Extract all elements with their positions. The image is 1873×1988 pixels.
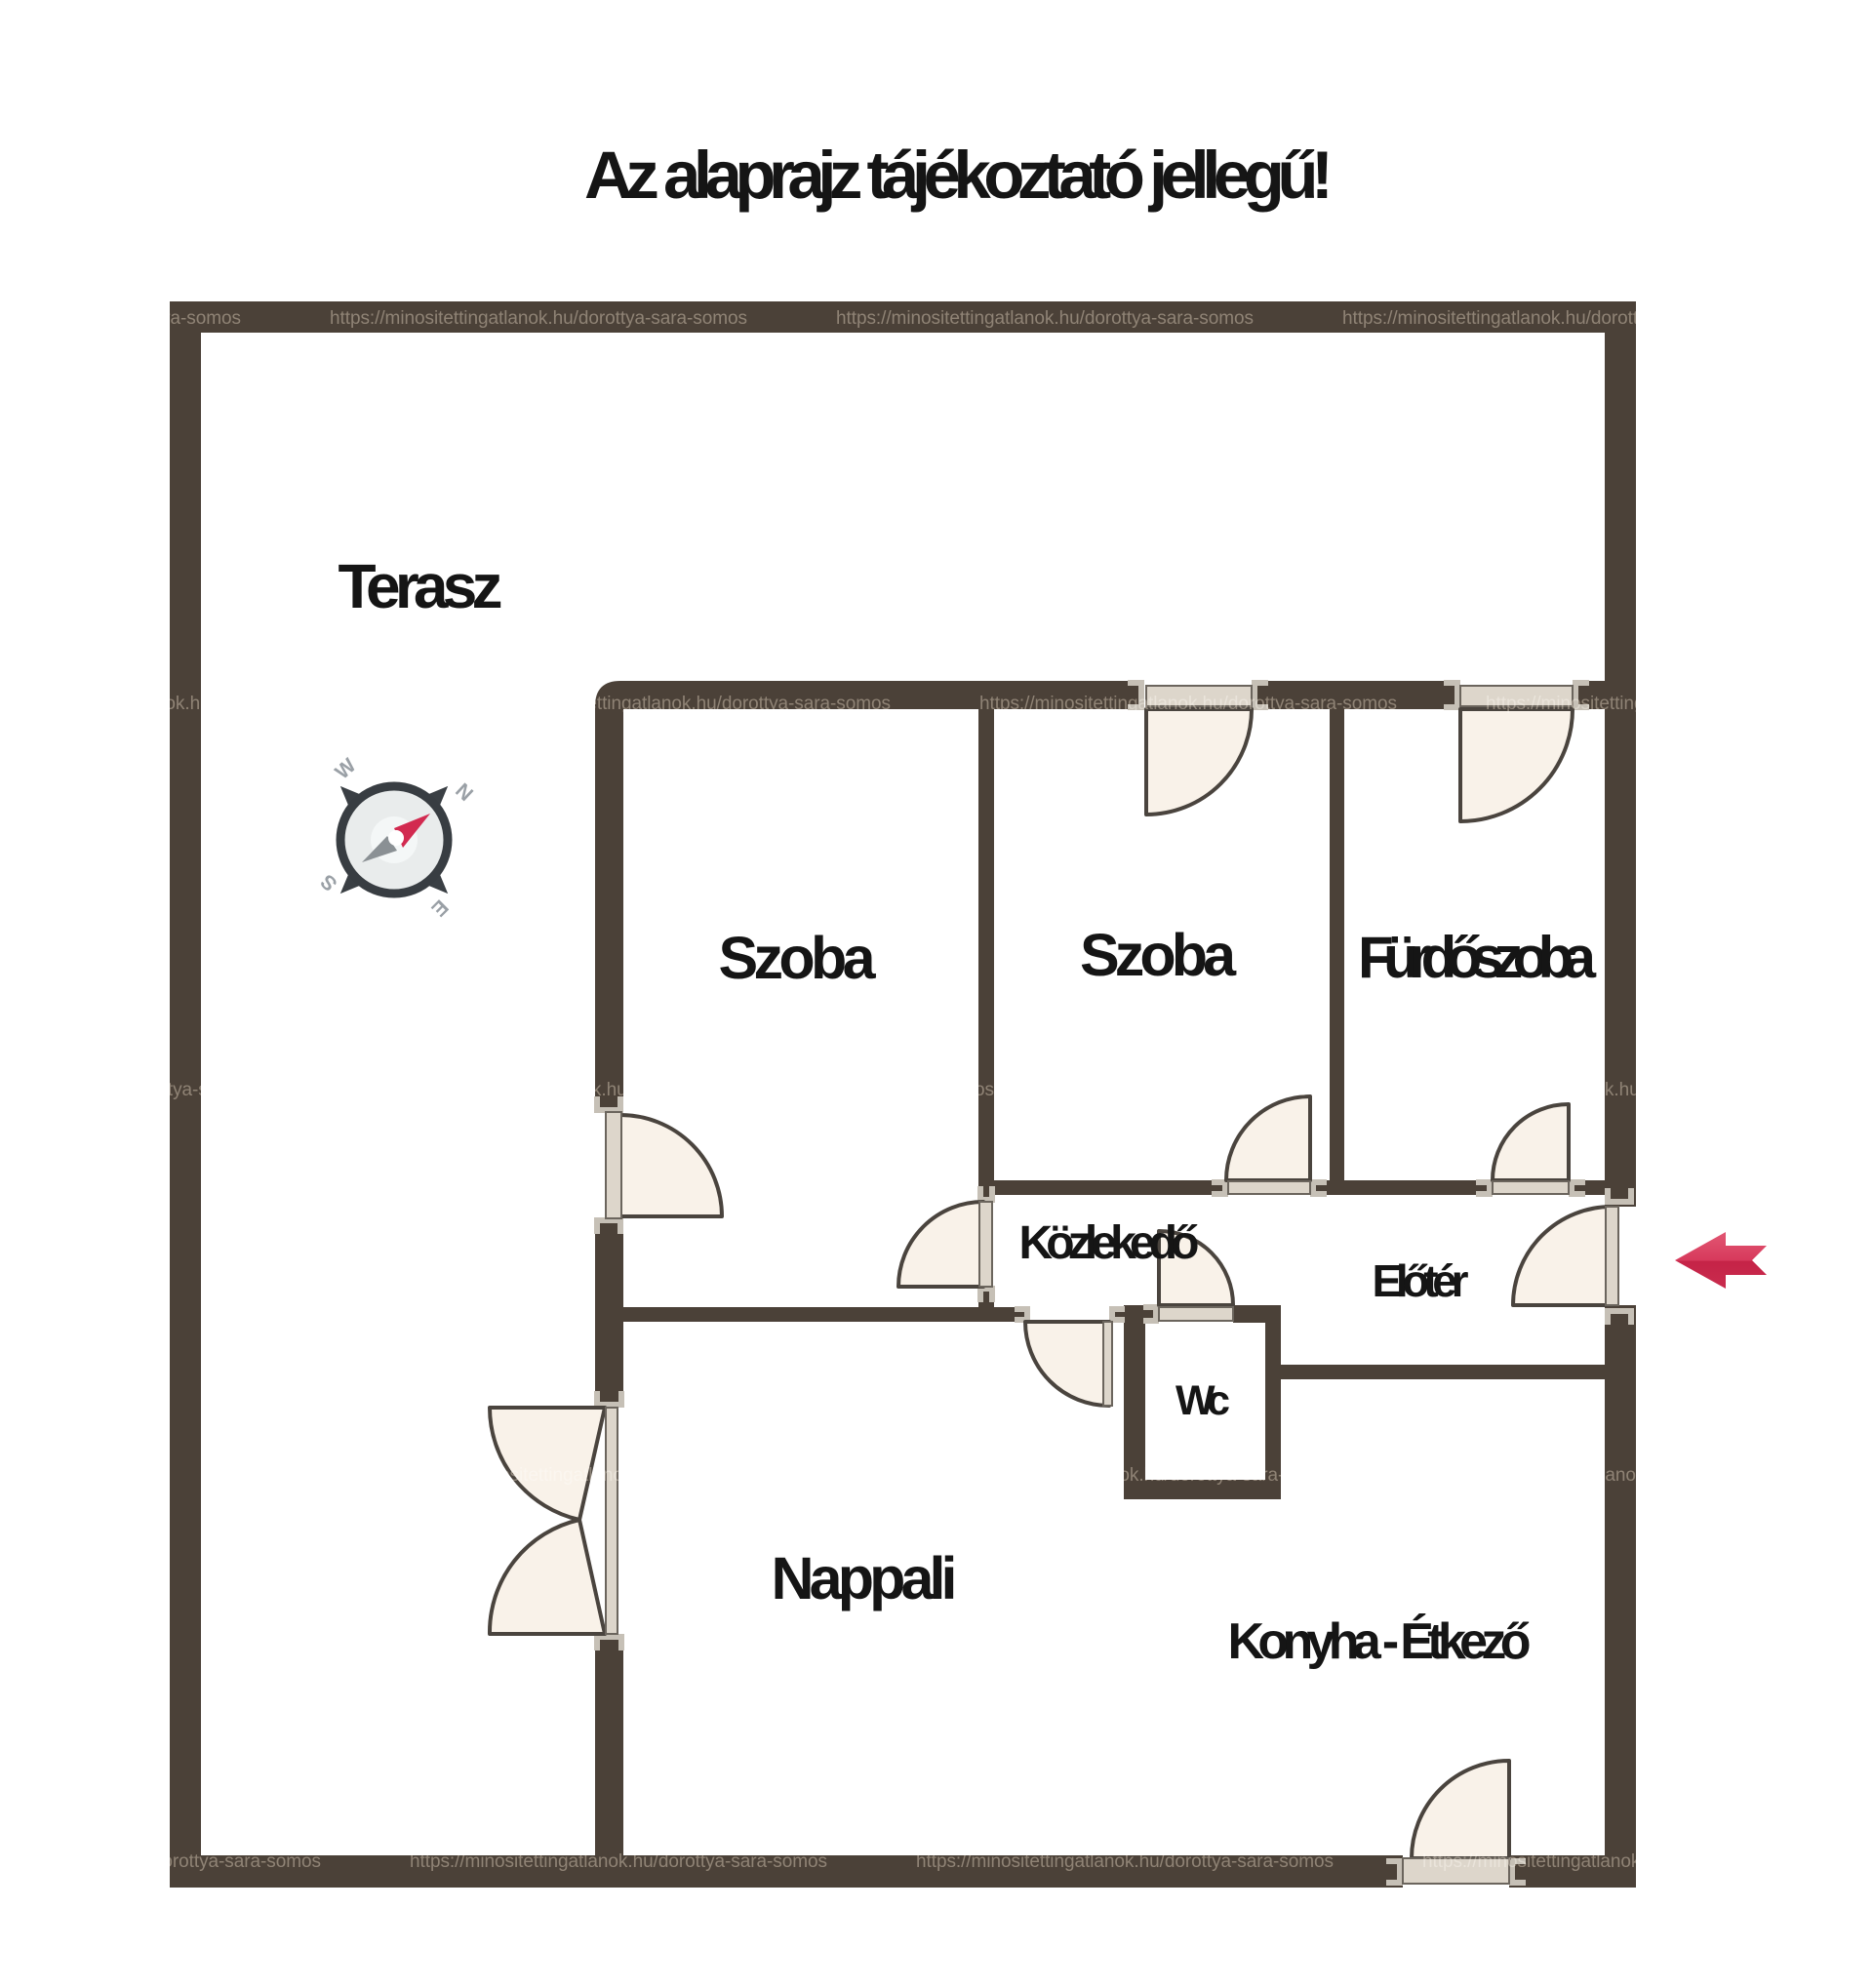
svg-text:https://minositettingatlanok.h: https://minositettingatlanok.hu/dorottya… [1422, 1851, 1840, 1872]
svg-text:https://minositettingatlanok.h: https://minositettingatlanok.hu/dorottya… [836, 308, 1254, 329]
svg-text:https://minositettingatlanok.h: https://minositettingatlanok.hu/dorottya… [921, 1465, 1338, 1486]
svg-text:https://minositettingatlanok.h: https://minositettingatlanok.hu/dorottya… [0, 1851, 321, 1872]
svg-text:Közlekedő: Közlekedő [1019, 1217, 1200, 1269]
svg-text:https://minositettingatlanok.h: https://minositettingatlanok.hu/dorottya… [1342, 308, 1760, 329]
svg-text:https://minositettingatlanok.h: https://minositettingatlanok.hu/dorottya… [916, 1851, 1334, 1872]
svg-text:https://minositettingatlanok.h: https://minositettingatlanok.hu/dorottya… [1486, 694, 1873, 714]
svg-text:https://minositettingatlanok.h: https://minositettingatlanok.hu/dorottya… [1396, 1080, 1813, 1100]
svg-text:Előtér: Előtér [1373, 1255, 1469, 1306]
svg-text:https://minositettingatlanok.h: https://minositettingatlanok.hu/dorottya… [0, 694, 384, 714]
svg-text:https://minositettingatlanok.h: https://minositettingatlanok.hu/dorottya… [0, 308, 241, 329]
svg-text:Wc: Wc [1176, 1377, 1230, 1424]
svg-text:Az alaprajz tájékoztató jelleg: Az alaprajz tájékoztató jellegű! [584, 138, 1334, 213]
svg-text:https://minositettingatlanok.h: https://minositettingatlanok.hu/dorottya… [410, 1851, 827, 1872]
svg-text:Szoba: Szoba [1080, 922, 1237, 988]
svg-text:Nappali: Nappali [772, 1545, 958, 1611]
svg-text:https://minositettingatlanok.h: https://minositettingatlanok.hu/dorottya… [1427, 1465, 1845, 1486]
svg-text:Szoba: Szoba [719, 925, 877, 991]
svg-text:Konyha - Étkező: Konyha - Étkező [1228, 1613, 1532, 1670]
svg-text:Fürdőszoba: Fürdőszoba [1358, 925, 1597, 990]
svg-text:https://minositettingatlanok.h: https://minositettingatlanok.hu/dorottya… [415, 1465, 832, 1486]
svg-text:https://minositettingatlanok.h: https://minositettingatlanok.hu/dorottya… [473, 694, 891, 714]
svg-text:https://minositettingatlanok.h: https://minositettingatlanok.hu/dorottya… [890, 1080, 1307, 1100]
svg-text:Terasz: Terasz [339, 551, 503, 621]
svg-text:https://minositettingatlanok.h: https://minositettingatlanok.hu/dorottya… [979, 694, 1397, 714]
svg-text:https://minositettingatlanok.h: https://minositettingatlanok.hu/dorottya… [383, 1080, 801, 1100]
svg-text:https://minositettingatlanok.h: https://minositettingatlanok.hu/dorottya… [0, 1080, 295, 1100]
svg-text:https://minositettingatlanok.h: https://minositettingatlanok.hu/dorottya… [330, 308, 747, 329]
